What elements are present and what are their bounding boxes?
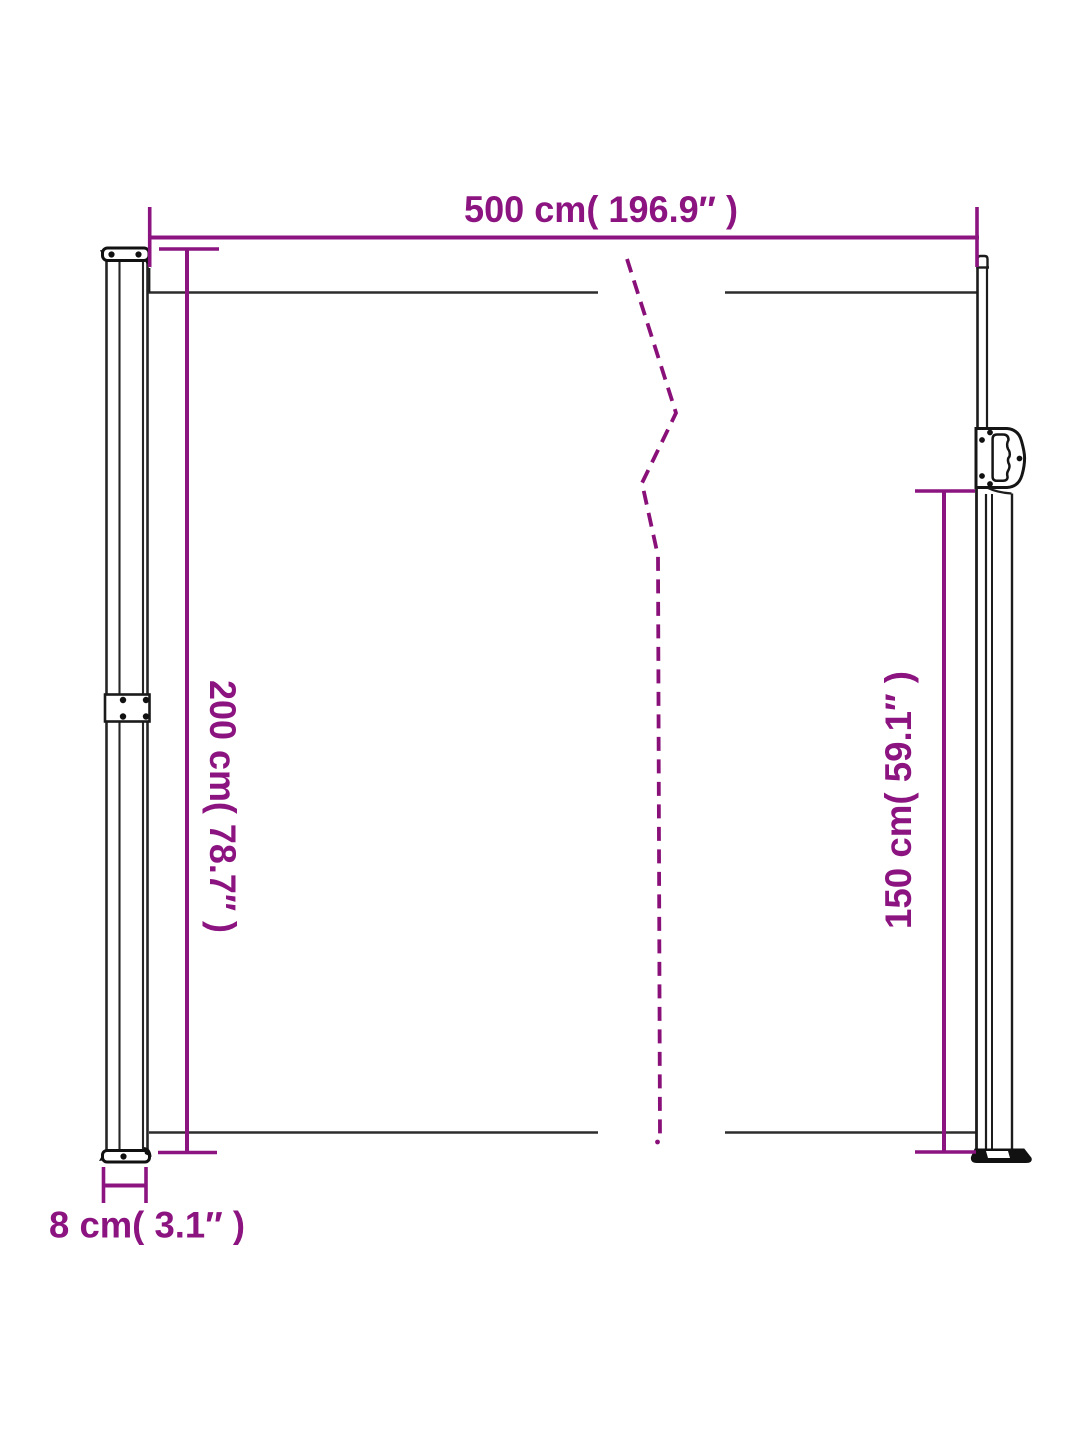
svg-text:8 cm( 3.1″ ): 8 cm( 3.1″ ) [49, 1205, 245, 1246]
svg-text:200 cm( 78.7″ ): 200 cm( 78.7″ ) [202, 680, 243, 933]
svg-text:150 cm( 59.1″ ): 150 cm( 59.1″ ) [878, 671, 919, 929]
svg-text:500 cm( 196.9″ ): 500 cm( 196.9″ ) [464, 189, 738, 230]
